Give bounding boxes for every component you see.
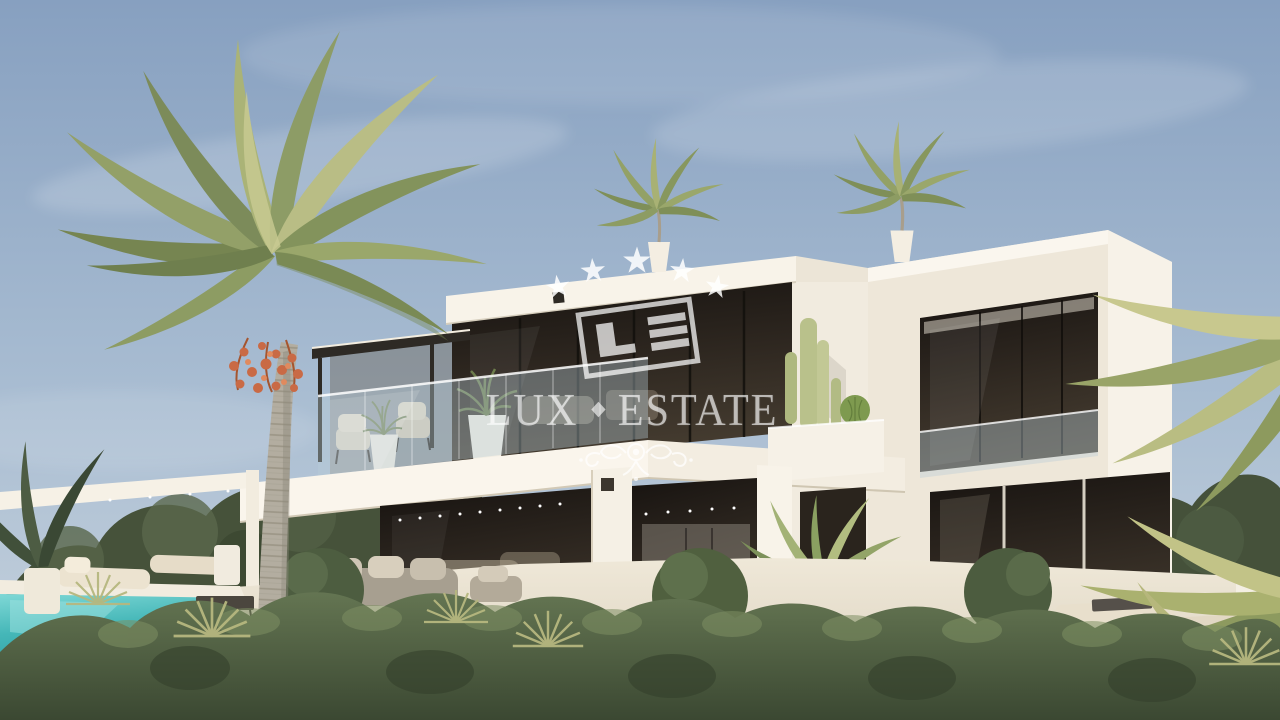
scene-canvas — [0, 0, 1280, 720]
villa-render-image: LUX ESTATE — [0, 0, 1280, 720]
white-planter — [214, 545, 240, 585]
